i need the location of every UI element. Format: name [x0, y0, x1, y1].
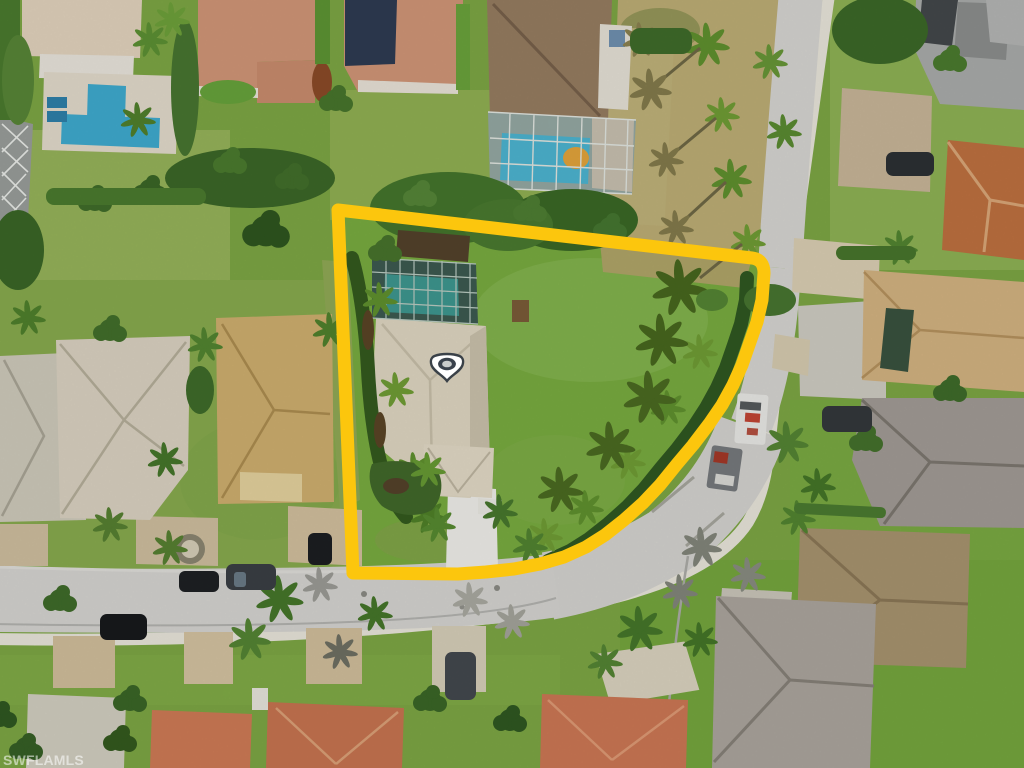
svg-text:SWFLAMLS: SWFLAMLS — [3, 752, 84, 768]
